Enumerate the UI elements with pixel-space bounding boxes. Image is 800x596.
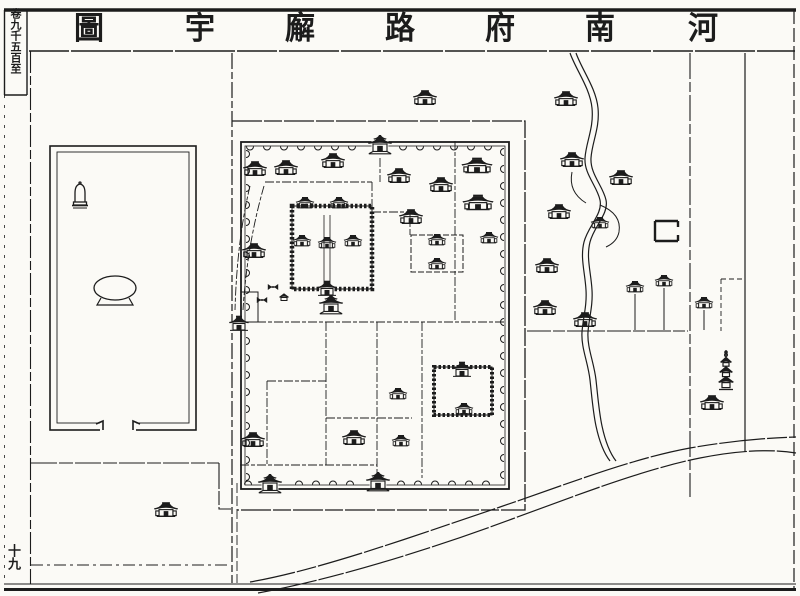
temple-enclosure-outer-wall bbox=[50, 146, 196, 430]
gate-icon bbox=[317, 281, 337, 296]
title-char: 河 bbox=[683, 8, 723, 50]
government-compound bbox=[232, 121, 525, 510]
small-icon bbox=[655, 275, 674, 286]
small-icon bbox=[626, 281, 645, 292]
gate-icon bbox=[366, 472, 390, 491]
leaf-page-number: 十九 bbox=[4, 544, 22, 570]
inner-courtyard-corridor bbox=[324, 215, 330, 284]
open-enclosure bbox=[655, 221, 678, 241]
small-icon bbox=[480, 232, 499, 243]
hall-icon bbox=[429, 177, 453, 191]
wall-crenellations bbox=[245, 147, 505, 485]
hall-icon bbox=[242, 243, 266, 257]
title-char: 廨 bbox=[280, 8, 320, 50]
small-icon bbox=[389, 388, 408, 399]
table-icon bbox=[268, 284, 278, 290]
curved-road-lower bbox=[258, 451, 796, 593]
hall-icon bbox=[387, 168, 411, 182]
gate-icon bbox=[258, 474, 282, 493]
hall-icon bbox=[243, 161, 267, 175]
temple-enclosure-inner-wall bbox=[57, 152, 189, 423]
field-boundary bbox=[721, 279, 742, 331]
hall-icon bbox=[609, 170, 633, 184]
gate-icon bbox=[368, 135, 392, 154]
hall-icon bbox=[241, 432, 265, 446]
river-branch bbox=[600, 205, 619, 247]
city-wall-outer bbox=[241, 142, 509, 489]
title-char: 路 bbox=[380, 8, 420, 50]
pond bbox=[94, 276, 136, 300]
hall-icon bbox=[274, 160, 298, 174]
title-char: 府 bbox=[480, 8, 520, 50]
small-icon bbox=[293, 235, 312, 246]
hall-icon bbox=[321, 153, 345, 167]
hall-icon bbox=[535, 258, 559, 272]
map-drawing bbox=[0, 0, 800, 596]
river-spur bbox=[571, 172, 586, 203]
lower-courtyard-wall bbox=[31, 463, 231, 509]
volume-margin-label: 卷九千五百至 bbox=[5, 8, 25, 94]
scanned-map-page: 圖 宇 廨 路 府 南 河 卷九千五百至 十九 bbox=[0, 0, 800, 596]
gate-icon bbox=[452, 362, 472, 377]
hall-icon bbox=[342, 430, 366, 444]
title-char: 宇 bbox=[180, 8, 220, 50]
wide-icon bbox=[462, 195, 493, 210]
hall-icon bbox=[413, 90, 437, 104]
pagoda-icon bbox=[718, 350, 734, 390]
small-icon bbox=[695, 297, 714, 308]
hall-icon bbox=[154, 502, 178, 516]
bell-icon bbox=[72, 182, 88, 208]
hall-icon bbox=[399, 209, 423, 223]
building-poles bbox=[635, 288, 704, 330]
small-icon bbox=[455, 403, 474, 414]
hall-icon bbox=[533, 300, 557, 314]
hall-icon bbox=[560, 152, 584, 166]
hall-icon bbox=[554, 91, 578, 105]
river bbox=[570, 53, 610, 461]
title-char: 南 bbox=[580, 8, 620, 50]
left-section bbox=[31, 146, 231, 565]
city-wall-inner bbox=[245, 146, 505, 485]
small-icon bbox=[428, 258, 447, 269]
small-icon bbox=[318, 237, 337, 248]
hall-icon bbox=[700, 395, 724, 409]
pond-base bbox=[97, 298, 133, 305]
hall-icon bbox=[573, 312, 597, 326]
wide-icon bbox=[461, 158, 492, 173]
small-icon bbox=[428, 234, 447, 245]
title-char: 圖 bbox=[69, 8, 109, 50]
right-section bbox=[250, 53, 796, 593]
compound-internal-lines bbox=[235, 141, 505, 478]
hall-icon bbox=[547, 204, 571, 218]
hut-icon bbox=[279, 293, 289, 300]
small-icon bbox=[344, 235, 363, 246]
small-icon bbox=[392, 435, 411, 446]
gate-icon bbox=[319, 295, 343, 314]
compound-outer-boundary bbox=[232, 121, 525, 510]
